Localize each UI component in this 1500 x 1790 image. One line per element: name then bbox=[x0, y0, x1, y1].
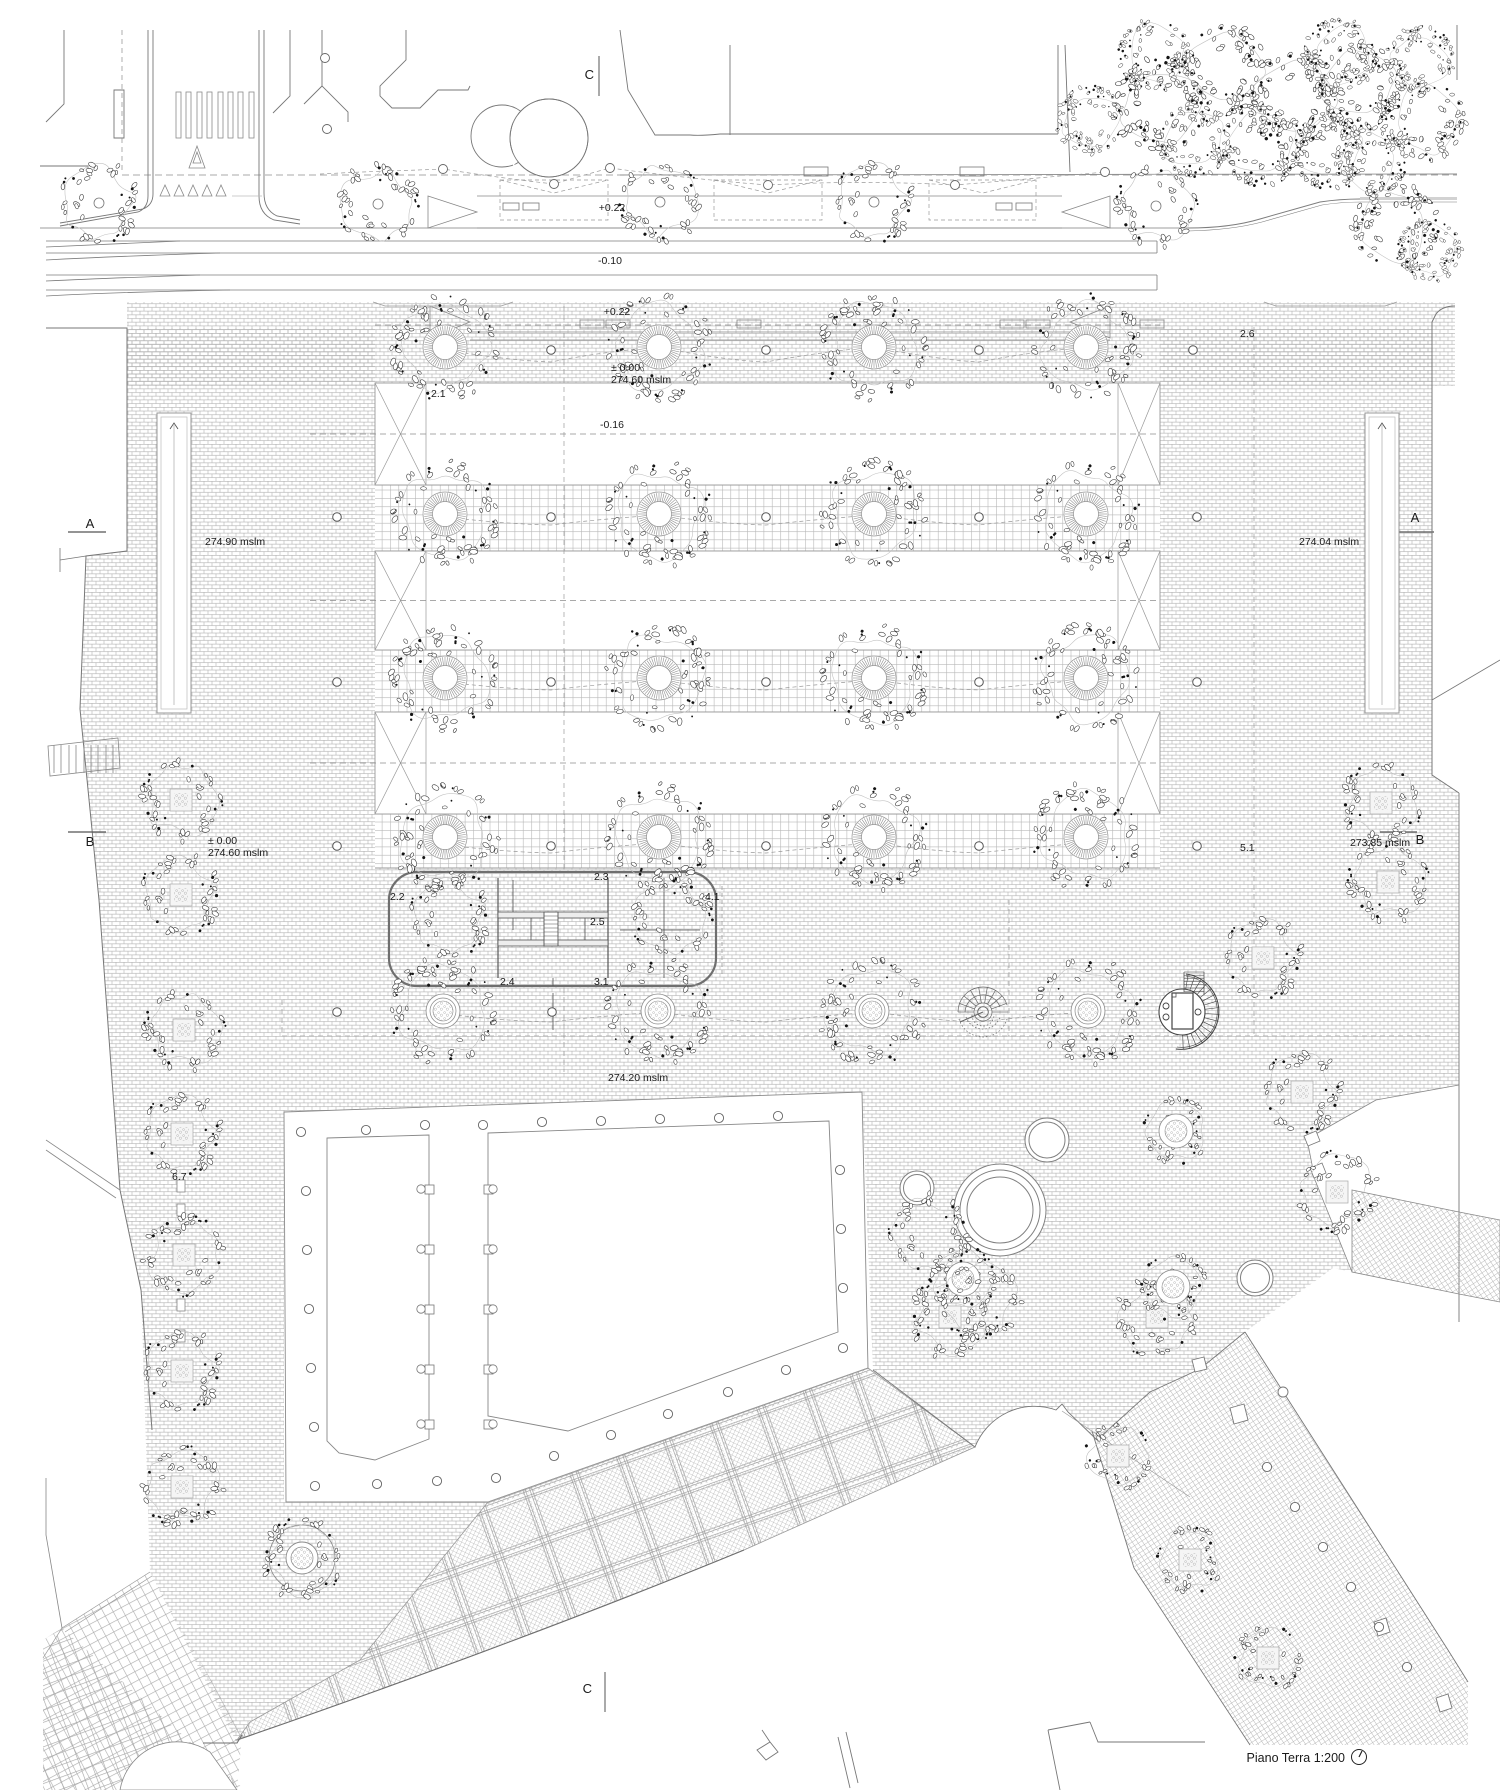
svg-text:2.3: 2.3 bbox=[594, 871, 609, 883]
svg-text:C: C bbox=[585, 67, 594, 82]
svg-text:2.2: 2.2 bbox=[390, 891, 405, 903]
svg-text:± 0.00: ± 0.00 bbox=[611, 362, 640, 374]
svg-text:273.85 mslm: 273.85 mslm bbox=[1350, 837, 1410, 849]
svg-text:2.4: 2.4 bbox=[500, 976, 515, 988]
svg-text:± 0.00: ± 0.00 bbox=[208, 835, 237, 847]
svg-text:+0.22: +0.22 bbox=[604, 306, 631, 318]
svg-text:274.60 mslm: 274.60 mslm bbox=[611, 374, 671, 386]
svg-text:2.1: 2.1 bbox=[431, 388, 446, 400]
svg-text:A: A bbox=[1411, 510, 1420, 525]
svg-text:274.90 mslm: 274.90 mslm bbox=[205, 536, 265, 548]
svg-text:B: B bbox=[1416, 832, 1425, 847]
svg-text:2.5: 2.5 bbox=[590, 916, 605, 928]
svg-text:274.04 mslm: 274.04 mslm bbox=[1299, 536, 1359, 548]
svg-text:274.20 mslm: 274.20 mslm bbox=[608, 1072, 668, 1084]
svg-text:-0.16: -0.16 bbox=[600, 419, 624, 431]
svg-text:+0.22: +0.22 bbox=[599, 202, 626, 214]
svg-text:6.7: 6.7 bbox=[172, 1171, 187, 1183]
svg-text:2.6: 2.6 bbox=[1240, 328, 1255, 340]
svg-text:3.1: 3.1 bbox=[594, 976, 609, 988]
svg-text:-0.10: -0.10 bbox=[598, 255, 622, 267]
svg-text:C: C bbox=[583, 1681, 592, 1696]
svg-text:B: B bbox=[86, 834, 95, 849]
svg-text:4.1: 4.1 bbox=[705, 891, 720, 903]
svg-text:274.60 mslm: 274.60 mslm bbox=[208, 847, 268, 859]
svg-text:Piano Terra 1:200: Piano Terra 1:200 bbox=[1247, 1751, 1345, 1765]
svg-text:5.1: 5.1 bbox=[1240, 842, 1255, 854]
svg-text:A: A bbox=[86, 516, 95, 531]
